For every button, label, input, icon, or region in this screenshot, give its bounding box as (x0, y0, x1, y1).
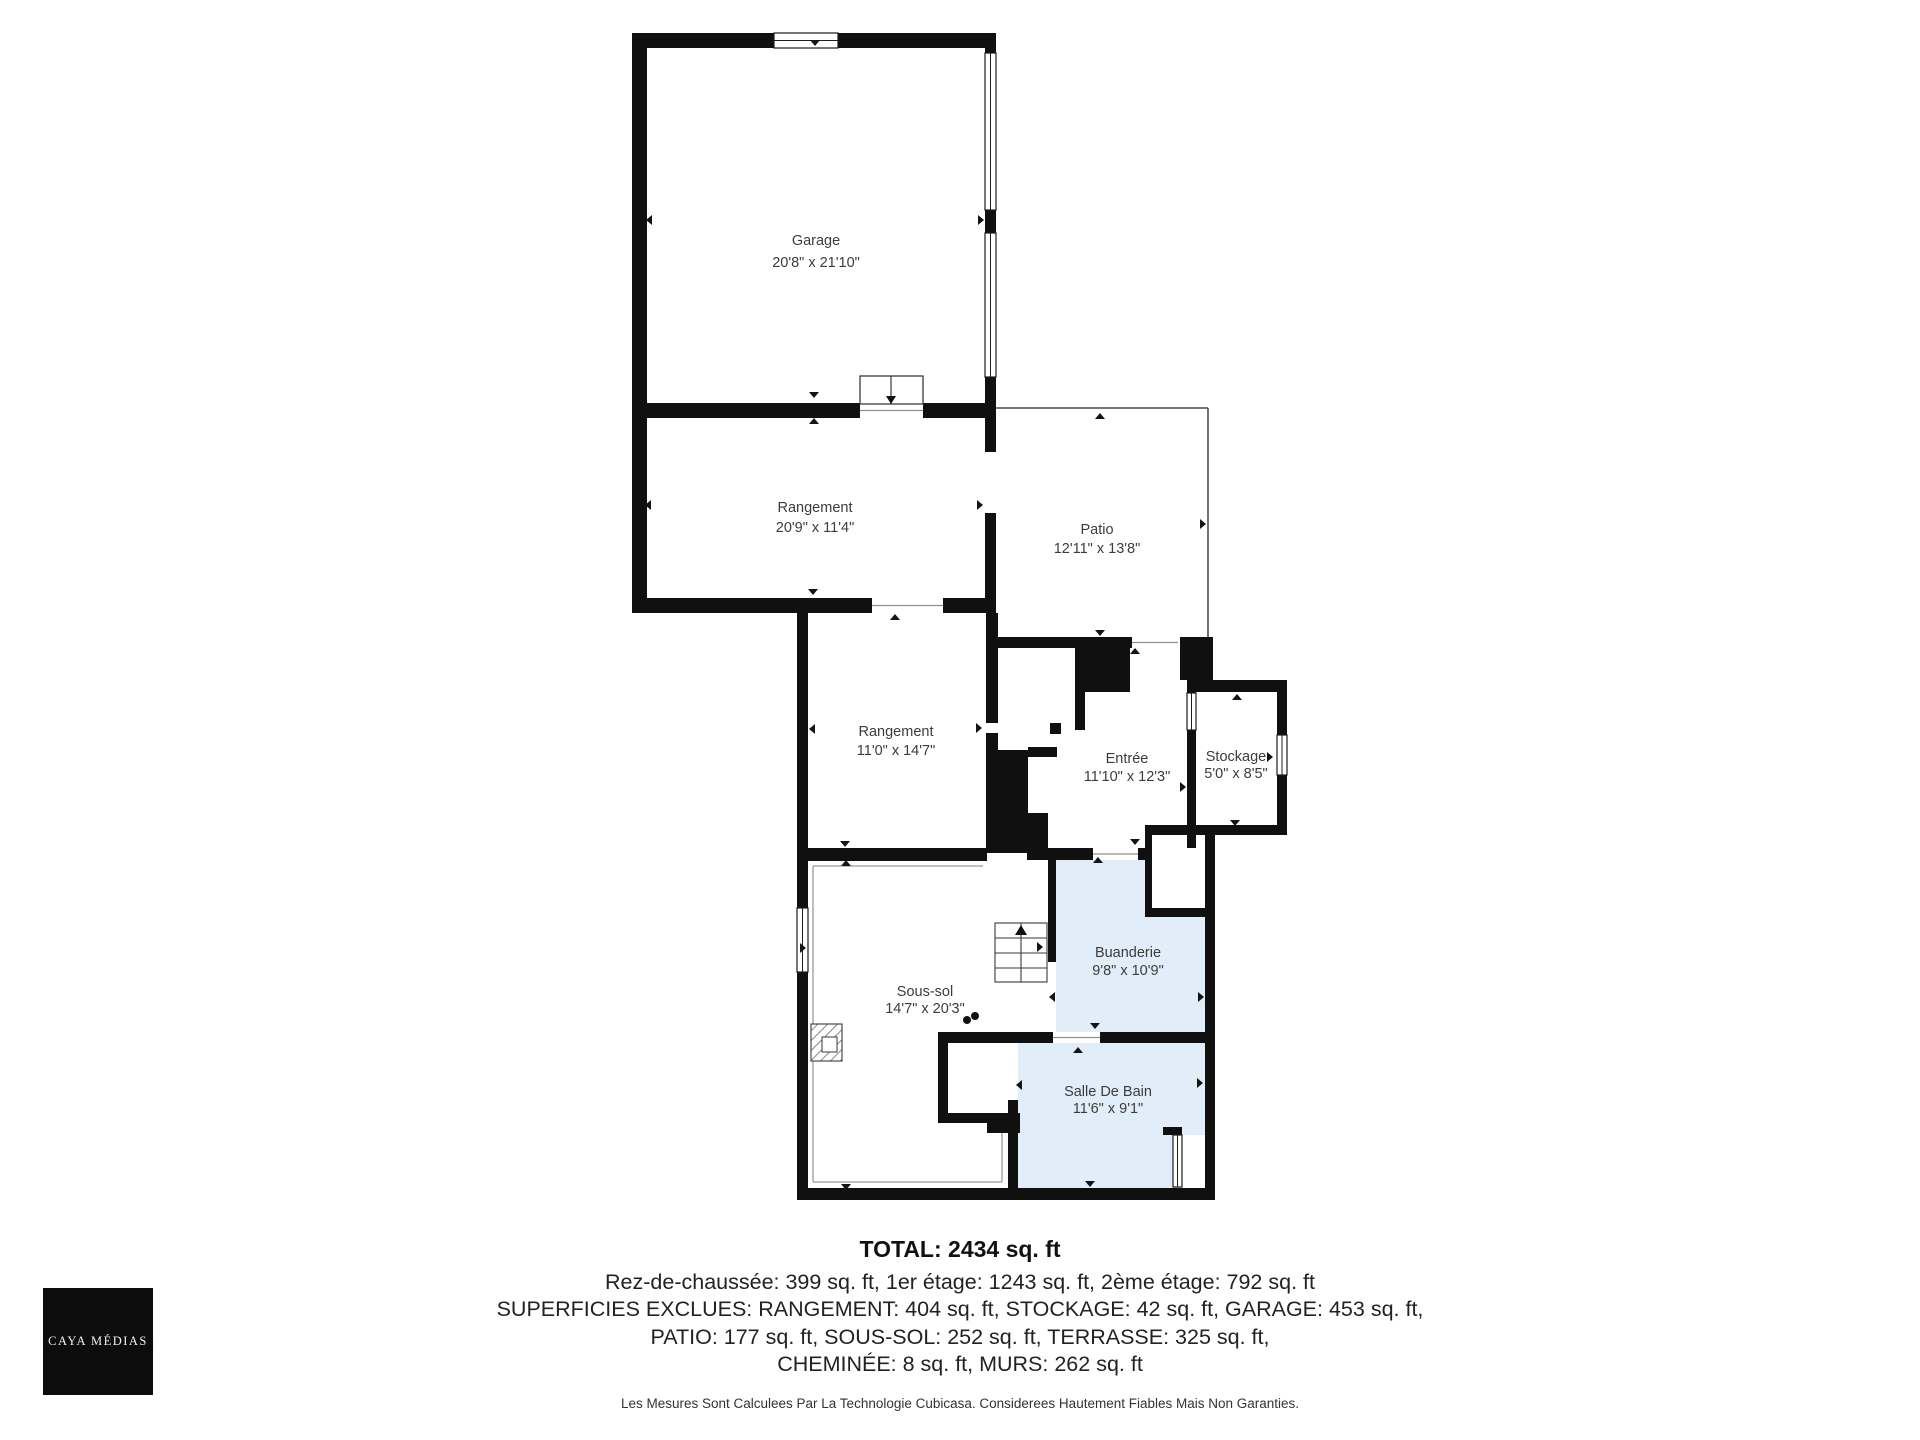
wall (1145, 908, 1205, 917)
wall (1277, 680, 1287, 735)
plumbing-dot (963, 1016, 971, 1024)
room-dimensions-rangement-bas: 11'0" x 14'7" (857, 743, 935, 759)
room-label-rangement-haut: Rangement (778, 500, 853, 516)
wall (632, 403, 860, 418)
measure-tick (890, 614, 900, 620)
room-label-rangement-bas: Rangement (859, 724, 934, 740)
room-label-patio: Patio (1080, 522, 1113, 538)
wall (1075, 692, 1085, 730)
summary-total: TOTAL: 2434 sq. ft (0, 1236, 1920, 1263)
room-label-stockage: Stockage (1206, 749, 1266, 765)
measure-tick (809, 418, 819, 424)
door-opening (985, 452, 996, 513)
room-dimensions-sous-sol: 14'7" x 20'3" (885, 1001, 965, 1017)
room-label-entree: Entrée (1106, 751, 1149, 767)
wall (797, 848, 987, 861)
summary-excluded-2: PATIO: 177 sq. ft, SOUS-SOL: 252 sq. ft,… (0, 1325, 1920, 1350)
wall (797, 1188, 1215, 1200)
door-opening (986, 723, 998, 733)
measure-tick (977, 500, 983, 510)
wall (923, 403, 996, 418)
wall (1145, 835, 1152, 908)
room-dimensions-garage: 20'8" x 21'10" (772, 255, 860, 271)
wall (632, 33, 647, 613)
disclaimer-text: Les Mesures Sont Calculees Par La Techno… (0, 1396, 1920, 1411)
summary-excluded-3: CHEMINÉE: 8 sq. ft, MURS: 262 sq. ft (0, 1352, 1920, 1377)
measure-tick (1200, 519, 1206, 529)
wall (986, 613, 998, 723)
floor-plan-page: Garage20'8" x 21'10"Rangement20'9" x 11'… (0, 0, 1920, 1440)
wall (985, 33, 996, 53)
wall (1048, 860, 1056, 962)
wall (1050, 723, 1061, 734)
measure-tick (840, 841, 850, 847)
logo-text: | CAYA MÉDIAS | (40, 1334, 157, 1349)
wall (1138, 848, 1152, 860)
wall (1100, 1032, 1205, 1043)
wall (938, 1032, 1053, 1043)
floor-plan-drawing: Garage20'8" x 21'10"Rangement20'9" x 11'… (0, 0, 1920, 1440)
measure-tick (1180, 782, 1186, 792)
room-notch (1182, 1135, 1205, 1188)
room-label-salle-de-bain: Salle De Bain (1064, 1084, 1152, 1100)
wall (1196, 680, 1287, 692)
room-dimensions-stockage: 5'0" x 8'5" (1204, 766, 1267, 782)
chimney-flue (822, 1037, 837, 1052)
door-opening (1008, 1043, 1018, 1100)
measure-tick (809, 392, 819, 398)
room-dimensions-buanderie: 9'8" x 10'9" (1092, 963, 1163, 979)
wall (797, 602, 808, 908)
wall (986, 750, 1028, 853)
room-dimensions-salle-de-bain: 11'6" x 9'1" (1073, 1101, 1143, 1117)
measure-tick (1095, 413, 1105, 419)
wall (1027, 848, 1093, 860)
measure-tick (976, 723, 982, 733)
wall (985, 210, 996, 233)
measure-tick (1130, 839, 1140, 845)
wall (1008, 1100, 1018, 1188)
room-label-buanderie: Buanderie (1095, 945, 1161, 961)
room-dimensions-rangement-haut: 20'9" x 11'4" (776, 520, 854, 536)
summary-floors: Rez-de-chaussée: 399 sq. ft, 1er étage: … (0, 1270, 1920, 1295)
room-label-garage: Garage (792, 233, 840, 249)
wall (1028, 813, 1048, 853)
measure-tick (1130, 648, 1140, 654)
wall (1145, 825, 1285, 835)
measure-tick (1049, 992, 1055, 1002)
wall (1187, 680, 1196, 693)
plumbing-dot (971, 1012, 979, 1020)
wall (797, 972, 808, 1200)
room-dimensions-patio: 12'11" x 13'8" (1054, 541, 1141, 557)
wall (943, 598, 996, 613)
summary-excluded-1: SUPERFICIES EXCLUES: RANGEMENT: 404 sq. … (0, 1297, 1920, 1322)
measure-tick (978, 215, 984, 225)
wall (1163, 1127, 1182, 1135)
measure-tick (1267, 752, 1273, 762)
wall (987, 1118, 1020, 1133)
caya-medias-logo: | CAYA MÉDIAS | (43, 1288, 153, 1395)
wall (986, 733, 998, 750)
room-dimensions-entree: 11'10" x 12'3" (1084, 769, 1171, 785)
wall (938, 1032, 948, 1123)
measure-tick (808, 589, 818, 595)
room-label-sous-sol: Sous-sol (897, 984, 953, 1000)
measure-tick (1232, 694, 1242, 700)
wall (632, 598, 872, 613)
wall (1028, 747, 1057, 757)
wall (1075, 640, 1130, 692)
measure-tick (1095, 630, 1105, 636)
measure-tick (809, 724, 815, 734)
wall (1180, 637, 1213, 680)
wall (1205, 835, 1215, 1200)
